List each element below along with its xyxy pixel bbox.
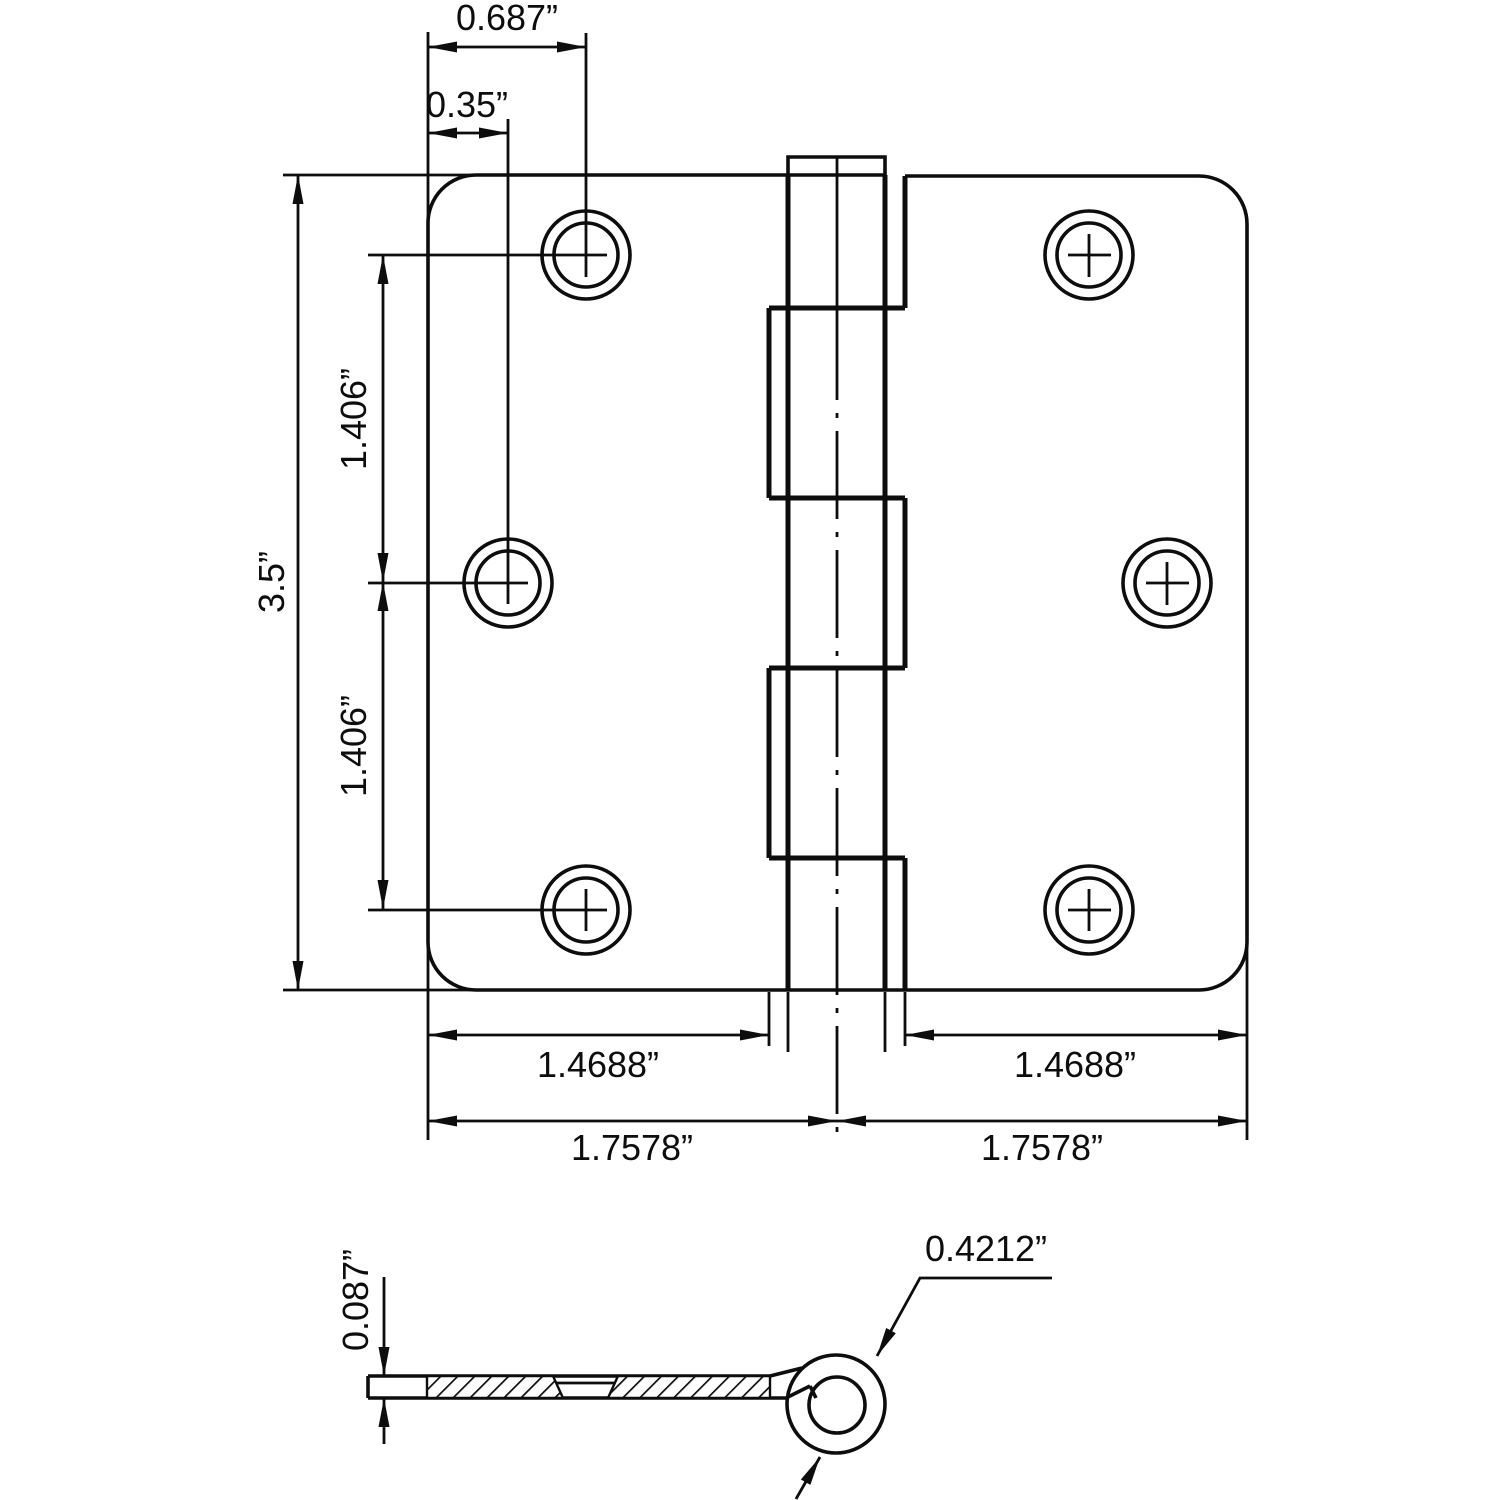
technical-drawing-canvas: 0.687” 0.35” 3.5” 1.406” 1.406” 1.4688” …	[0, 0, 1500, 1500]
hinge-barrel	[769, 157, 905, 1137]
dim-label-leaf-thickness: 0.087”	[335, 1249, 376, 1351]
curl-pin-hole	[809, 1377, 865, 1433]
front-view: 0.687” 0.35” 3.5” 1.406” 1.406” 1.4688” …	[251, 0, 1247, 1168]
lower-leader-arrow	[796, 1457, 820, 1499]
dim-label-hole-mid-offset: 0.35”	[426, 84, 508, 125]
dim-label-center-to-edge-left: 1.7578”	[571, 1127, 693, 1168]
dim-label-hole-top-offset: 0.687”	[456, 0, 558, 38]
hole-crosshairs	[368, 33, 1189, 931]
dim-label-hole-spacing-lower: 1.406”	[333, 695, 374, 797]
hatch-region-right	[608, 1376, 770, 1398]
dim-label-center-to-edge-right: 1.7578”	[981, 1127, 1103, 1168]
section-plate	[368, 1376, 788, 1398]
dim-label-leaf-width-right: 1.4688”	[1014, 1044, 1136, 1085]
knuckle-diameter-leader	[877, 1278, 1052, 1356]
hinge-technical-drawing: 0.687” 0.35” 3.5” 1.406” 1.406” 1.4688” …	[0, 0, 1500, 1500]
dim-label-hole-spacing-upper: 1.406”	[333, 368, 374, 470]
knuckle-curl	[770, 1355, 885, 1453]
section-view: 0.087” 0.4212”	[335, 1228, 1052, 1499]
dim-label-leaf-width-left: 1.4688”	[537, 1044, 659, 1085]
dim-label-knuckle-diameter: 0.4212”	[925, 1228, 1047, 1269]
dim-label-leaf-height: 3.5”	[251, 551, 292, 613]
hatch-region-left	[427, 1376, 563, 1398]
